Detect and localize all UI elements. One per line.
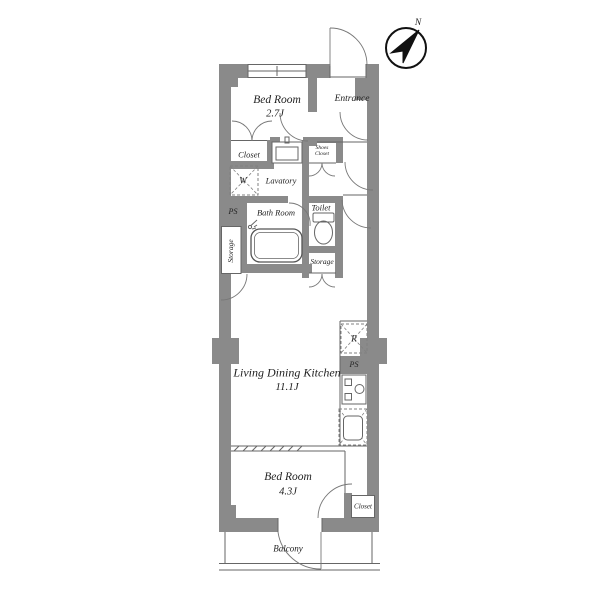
closet2-door-arc <box>318 484 352 518</box>
toilet-icon <box>313 213 334 244</box>
lavatory-label: Lavatory <box>266 177 297 186</box>
washer-mark-label: W <box>239 176 247 185</box>
shoes-closet-door-arc-right <box>322 163 335 176</box>
bedroom1-size: 2.7J <box>266 108 284 119</box>
storage-left-door-arc <box>221 274 247 300</box>
closet1-door-arc-right <box>252 121 272 141</box>
fridge-mark-label: R <box>351 334 357 343</box>
storage-hall-door-arc-left <box>309 274 322 287</box>
lavatory-door-arc <box>345 162 373 190</box>
closet1-label: Closet <box>238 151 260 160</box>
bathtub-icon <box>251 229 302 262</box>
kitchen-sink-icon <box>339 409 367 445</box>
ldk-label: Living Dining Kitchen <box>233 367 340 380</box>
floor-plan: Bed Room 2.7J Entrance Closet Shoes Clos… <box>0 0 600 600</box>
bedroom1-label: Bed Room <box>253 94 301 106</box>
shoes-closet-door-arc-left <box>309 163 322 176</box>
bedroom2-label: Bed Room <box>264 471 312 483</box>
storage-left-label: Storage <box>227 239 235 262</box>
entrance-label: Entrance <box>335 95 370 105</box>
bedroom2-size: 4.3J <box>279 486 297 497</box>
compass-n-label: N <box>415 19 421 29</box>
shoes-closet-line2: Closet <box>315 152 329 158</box>
toilet-door-arc <box>342 200 371 228</box>
front-door-arc <box>330 28 367 66</box>
plan-linework <box>0 0 600 600</box>
north-compass-icon <box>386 28 426 68</box>
closet2-label: Closet <box>354 503 372 510</box>
closet1-door-arc-left <box>232 121 252 141</box>
bathroom-label: Bath Room <box>257 209 295 218</box>
storage-hall-label: Storage <box>310 258 333 266</box>
bedroom1-door-arc <box>280 113 308 141</box>
stove-icon <box>342 375 366 404</box>
storage-hall-door-arc-right <box>322 274 335 287</box>
ps-right-label: PS <box>350 361 359 369</box>
washbasin-icon <box>272 137 302 163</box>
shoes-closet-label: Shoes Closet <box>315 146 329 158</box>
sliding-door-icon <box>231 446 345 451</box>
balcony-label: Balcony <box>273 544 303 553</box>
shower-icon <box>248 220 257 229</box>
window-icon <box>248 64 306 78</box>
entrance-hall-door-arc <box>340 112 368 140</box>
entrance-opening <box>330 64 366 78</box>
ps-left-label: PS <box>229 208 238 216</box>
toilet-label: Toilet <box>311 204 330 213</box>
ldk-size: 11.1J <box>275 382 298 394</box>
